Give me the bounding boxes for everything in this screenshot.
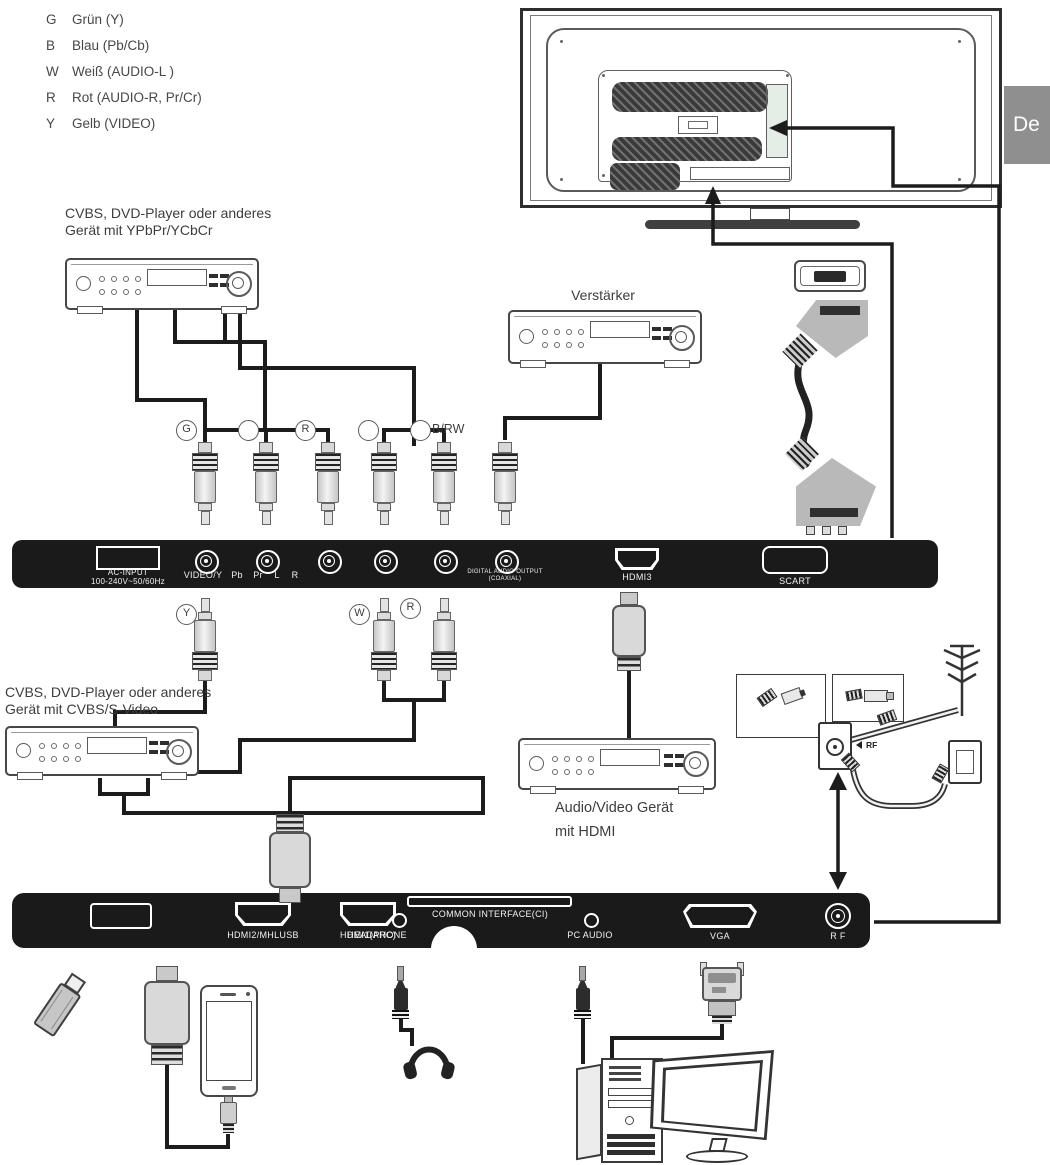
hdmi-connector-mhl xyxy=(146,966,188,1065)
plug-letter-r2: R xyxy=(400,598,421,619)
av-hdmi-label: Audio/Video Gerät mit HDMI xyxy=(555,800,673,841)
rca-plug-audio xyxy=(431,442,457,525)
dvd-component-label-line2: Gerät mit YPbPr/YCbCr xyxy=(65,222,271,239)
pc-audio-plug xyxy=(574,966,591,1019)
legend-desc: Grün (Y) xyxy=(72,12,124,27)
antenna-wall-socket xyxy=(948,740,982,784)
legend-desc: Rot (AUDIO-R, Pr/Cr) xyxy=(72,90,202,105)
dvd-player-cvbs xyxy=(5,726,199,776)
rca-plug-white xyxy=(371,442,397,525)
rca-plug-red-2 xyxy=(431,598,457,681)
av-hdmi-label-line1: Audio/Video Gerät xyxy=(555,800,673,818)
plug-label-brw: B/RW xyxy=(432,422,464,436)
plug-letter-blank xyxy=(238,420,259,441)
rf-arrow-icon xyxy=(856,741,862,749)
plug-letter-blank xyxy=(410,420,431,441)
rf-callout-label: RF xyxy=(866,740,877,750)
legend-item: YGelb (VIDEO) xyxy=(46,116,155,131)
language-tab-label: De xyxy=(1013,113,1040,137)
legend-desc: Weiß (AUDIO-L ) xyxy=(72,64,174,79)
av-device-hdmi xyxy=(518,738,716,790)
hdmi-connector-hdmi3 xyxy=(612,592,646,671)
legend-key: B xyxy=(46,38,72,53)
legend-item: WWeiß (AUDIO-L ) xyxy=(46,64,174,79)
monitor-base xyxy=(686,1150,748,1163)
rca-plug-red xyxy=(315,442,341,525)
plug-letter-w: W xyxy=(349,604,370,625)
legend-item: BBlau (Pb/Cb) xyxy=(46,38,149,53)
rca-plug-green xyxy=(192,442,218,525)
hdmi-connector-down xyxy=(271,814,309,903)
amplifier-device xyxy=(508,310,702,364)
plug-letter-blank xyxy=(358,420,379,441)
legend-key: G xyxy=(46,12,72,27)
rf-double-arrow-bottom xyxy=(829,872,847,890)
legend-desc: Gelb (VIDEO) xyxy=(72,116,155,131)
rf-double-arrow-top xyxy=(829,772,847,790)
smartphone xyxy=(200,985,258,1097)
vga-connector xyxy=(698,962,746,1024)
legend-desc: Blau (Pb/Cb) xyxy=(72,38,149,53)
legend-key: R xyxy=(46,90,72,105)
inset-coax-plug-box xyxy=(736,674,826,738)
plug-letter-r: R xyxy=(295,420,316,441)
amplifier-label: Verstärker xyxy=(510,287,696,304)
legend-item: RRot (AUDIO-R, Pr/Cr) xyxy=(46,90,202,105)
legend-key: Y xyxy=(46,116,72,131)
rca-plug-blue xyxy=(253,442,279,525)
headphone-plug xyxy=(392,966,409,1019)
plug-letter-g: G xyxy=(176,420,197,441)
language-tab: De xyxy=(1004,86,1050,164)
dvd-cvbs-label-line2: Gerät mit CVBS/S-Video xyxy=(5,701,211,718)
micro-usb-plug xyxy=(219,1096,238,1136)
arrow-into-tv-bottom xyxy=(705,186,721,204)
dvd-component-label-line1: CVBS, DVD-Player oder anderes xyxy=(65,205,271,222)
dvd-component-label: CVBS, DVD-Player oder anderes Gerät mit … xyxy=(65,205,271,239)
manual-connection-diagram: GGrün (Y) BBlau (Pb/Cb) WWeiß (AUDIO-L )… xyxy=(0,0,1050,1165)
rca-plug-coax xyxy=(492,442,518,525)
arrow-into-tv-side xyxy=(769,120,787,136)
scart-socket xyxy=(794,260,866,292)
av-hdmi-label-line2: mit HDMI xyxy=(555,824,673,842)
coax-barrel-adapter-icon xyxy=(864,690,888,702)
dvd-cvbs-label: CVBS, DVD-Player oder anderes Gerät mit … xyxy=(5,684,211,718)
antenna-icon xyxy=(944,646,980,716)
rca-plug-white-2 xyxy=(371,598,397,681)
legend-item: GGrün (Y) xyxy=(46,12,124,27)
pc-tower-side xyxy=(576,1064,602,1161)
plug-letter-y: Y xyxy=(176,604,197,625)
headphones-icon xyxy=(402,1050,456,1081)
dvd-player-component xyxy=(65,258,259,310)
dvd-cvbs-label-line1: CVBS, DVD-Player oder anderes xyxy=(5,684,211,701)
legend-key: W xyxy=(46,64,72,79)
